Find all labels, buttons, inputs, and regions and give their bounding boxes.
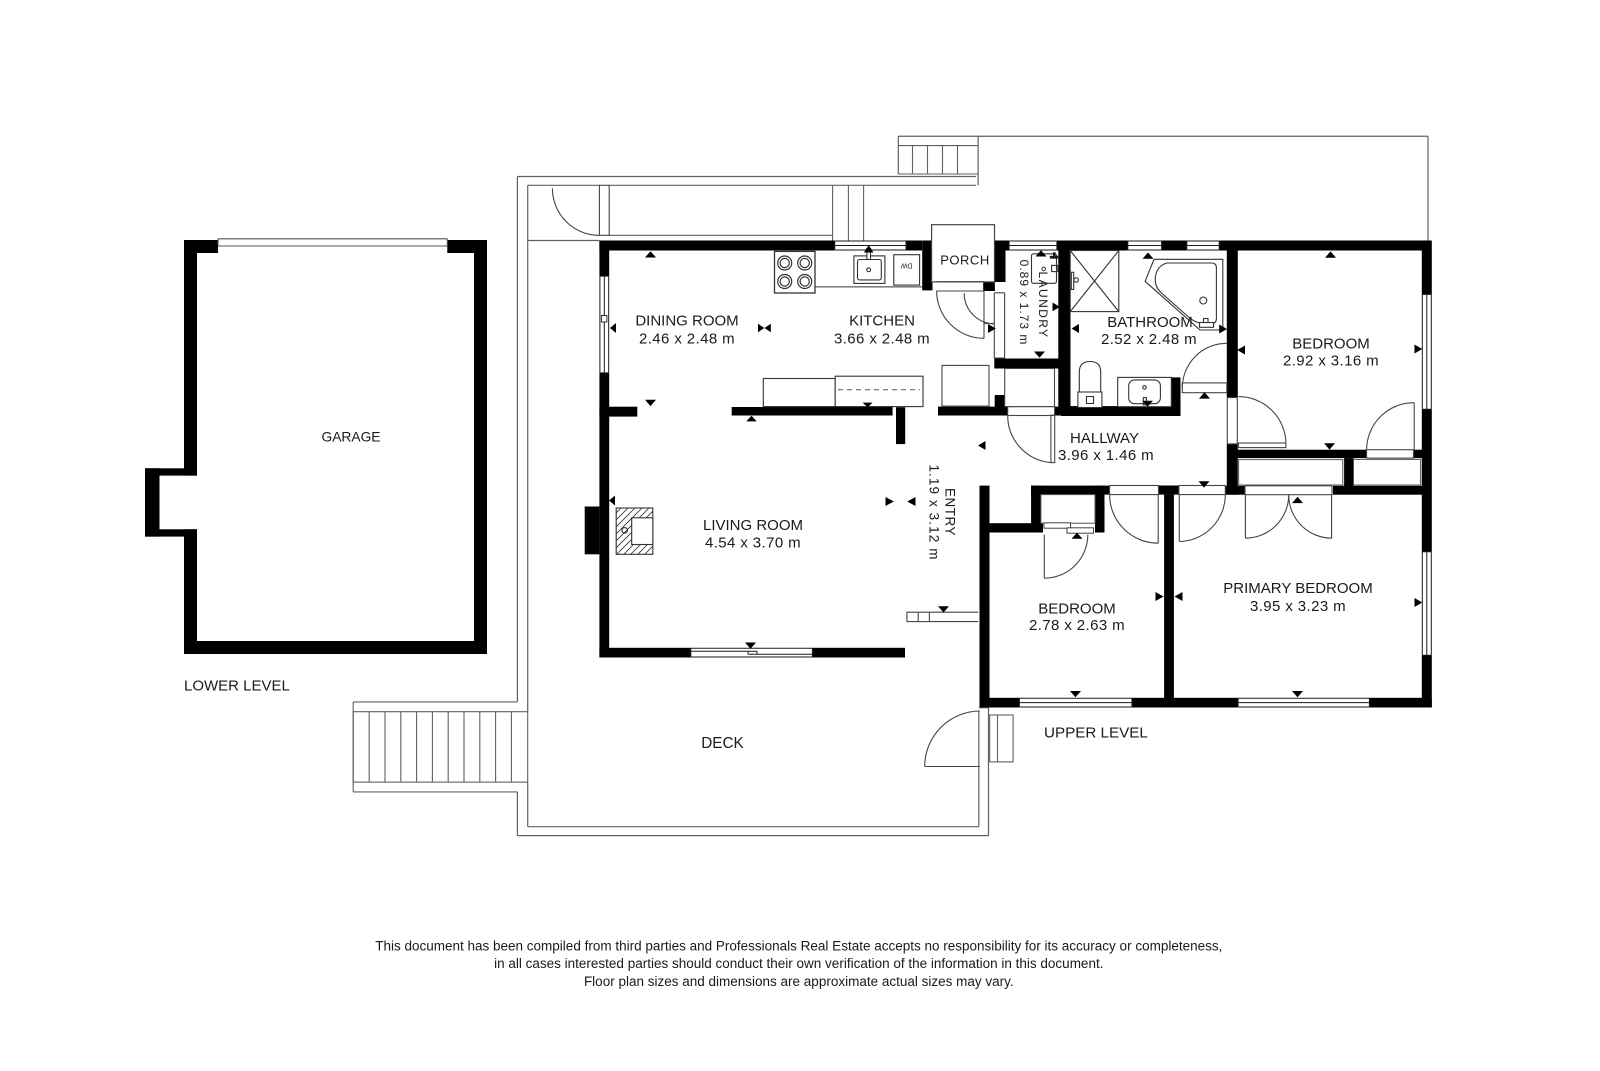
svg-text:in all cases interested partie: in all cases interested parties should c… xyxy=(494,956,1103,971)
svg-text:PORCH: PORCH xyxy=(940,253,989,268)
svg-text:DECK: DECK xyxy=(701,735,744,752)
svg-text:2.52 x 2.48 m: 2.52 x 2.48 m xyxy=(1101,331,1197,348)
svg-text:3.96 x 1.46 m: 3.96 x 1.46 m xyxy=(1058,447,1154,464)
svg-text:BEDROOM: BEDROOM xyxy=(1038,601,1116,618)
svg-text:BEDROOM: BEDROOM xyxy=(1292,336,1370,353)
svg-text:UPPER LEVEL: UPPER LEVEL xyxy=(1044,725,1148,742)
svg-text:GARAGE: GARAGE xyxy=(321,430,380,445)
svg-text:BATHROOM: BATHROOM xyxy=(1107,314,1193,331)
svg-text:LAUNDRY: LAUNDRY xyxy=(1036,272,1050,339)
svg-text:2.78 x 2.63 m: 2.78 x 2.63 m xyxy=(1029,617,1125,634)
svg-text:This document has been compile: This document has been compiled from thi… xyxy=(375,939,1222,954)
svg-text:DW: DW xyxy=(900,261,912,268)
svg-text:Floor plan sizes and dimension: Floor plan sizes and dimensions are appr… xyxy=(584,974,1014,989)
svg-text:4.54 x 3.70 m: 4.54 x 3.70 m xyxy=(705,535,801,552)
svg-text:3.66 x 2.48 m: 3.66 x 2.48 m xyxy=(834,331,930,348)
svg-text:PRIMARY BEDROOM: PRIMARY BEDROOM xyxy=(1223,580,1372,597)
svg-text:KITCHEN: KITCHEN xyxy=(849,313,915,330)
svg-text:LIVING ROOM: LIVING ROOM xyxy=(703,517,803,534)
svg-text:0.89 x 1.73 m: 0.89 x 1.73 m xyxy=(1017,260,1031,346)
svg-text:2.46 x 2.48 m: 2.46 x 2.48 m xyxy=(639,331,735,348)
svg-text:ENTRY: ENTRY xyxy=(943,488,958,536)
svg-text:LOWER LEVEL: LOWER LEVEL xyxy=(184,678,290,695)
svg-text:DINING ROOM: DINING ROOM xyxy=(635,313,738,330)
svg-text:HALLWAY: HALLWAY xyxy=(1070,430,1139,447)
svg-text:2.92 x 3.16 m: 2.92 x 3.16 m xyxy=(1283,353,1379,370)
svg-text:1.19 x 3.12 m: 1.19 x 3.12 m xyxy=(927,464,942,560)
svg-text:3.95 x 3.23 m: 3.95 x 3.23 m xyxy=(1250,598,1346,615)
